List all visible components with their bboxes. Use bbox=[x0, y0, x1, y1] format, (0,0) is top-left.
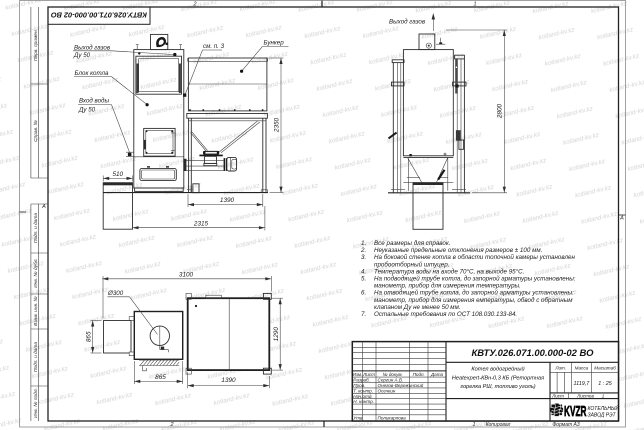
svg-text:Ø300: Ø300 bbox=[107, 290, 124, 297]
svg-text:Бункер: Бункер bbox=[264, 40, 285, 47]
svg-text:Ду 50: Ду 50 bbox=[78, 106, 96, 113]
svg-text:см. п. 3: см. п. 3 bbox=[203, 43, 225, 50]
svg-text:Справ. №: Справ. № bbox=[33, 120, 39, 142]
svg-text:Ду 50: Ду 50 bbox=[73, 52, 91, 59]
svg-text:6.: 6. bbox=[361, 290, 366, 297]
svg-text:Взам. инв. №: Взам. инв. № bbox=[33, 296, 39, 326]
svg-text:№ докум.: № докум. bbox=[383, 372, 403, 377]
svg-text:510: 510 bbox=[112, 171, 123, 178]
svg-text:Лист: Лист bbox=[362, 372, 375, 377]
svg-text:КВТУ.026.071.00.000-02 ВО: КВТУ.026.071.00.000-02 ВО bbox=[472, 348, 594, 358]
svg-text:Лист: Лист bbox=[551, 394, 564, 399]
svg-text:пробоотборный штуцер.: пробоотборный штуцер. bbox=[374, 261, 449, 268]
svg-text:Блок котла: Блок котла bbox=[75, 70, 109, 77]
svg-text:Разраб.: Разраб. bbox=[353, 378, 370, 383]
svg-text:2350: 2350 bbox=[274, 117, 281, 133]
svg-text:Нач.отд.: Нач.отд. bbox=[353, 394, 372, 399]
svg-text:Инв. № подл.: Инв. № подл. bbox=[33, 388, 39, 418]
svg-text:7.: 7. bbox=[361, 311, 366, 318]
svg-text:2315: 2315 bbox=[193, 220, 209, 227]
svg-text:Heatexpert-КВн-0,3 КБ (Ретортн: Heatexpert-КВн-0,3 КБ (Ретортная bbox=[452, 375, 544, 381]
svg-text:Масштаб: Масштаб bbox=[594, 365, 616, 370]
svg-text:горелка РШ, топливо уголь): горелка РШ, топливо уголь) bbox=[460, 384, 535, 390]
svg-text:манометр, прибор для измерения: манометр, прибор для измерения температу… bbox=[374, 283, 521, 290]
svg-text:Лит.: Лит. bbox=[554, 365, 566, 370]
svg-text:1: 1 bbox=[472, 422, 475, 428]
svg-text:Инв. № дубл.: Инв. № дубл. bbox=[33, 258, 39, 288]
svg-text:Поликарпова: Поликарпова bbox=[378, 416, 407, 421]
svg-text:КОТЕЛЬНЫЙ: КОТЕЛЬНЫЙ bbox=[588, 404, 620, 412]
svg-text:Н. контр.: Н. контр. bbox=[353, 399, 374, 404]
svg-text:2: 2 bbox=[169, 422, 173, 428]
svg-text:2.: 2. bbox=[360, 247, 366, 254]
svg-text:4.: 4. bbox=[361, 268, 366, 275]
svg-text:Масса: Масса bbox=[575, 365, 589, 370]
svg-text:Подп. и дата: Подп. и дата bbox=[33, 342, 39, 372]
svg-text:На отводящей трубе котла, до з: На отводящей трубе котла, до запорной ар… bbox=[374, 290, 574, 297]
svg-text:клапаном Ду не менее 50 мм.: клапаном Ду не менее 50 мм. bbox=[374, 304, 461, 311]
svg-text:Утв.: Утв. bbox=[353, 416, 363, 421]
svg-text:Подп. и дата: Подп. и дата bbox=[33, 213, 39, 243]
svg-text:Котел водогрейный: Котел водогрейный bbox=[471, 366, 524, 373]
svg-text:3.: 3. bbox=[361, 254, 366, 261]
svg-text:1: 1 bbox=[602, 394, 605, 399]
svg-text:1.: 1. bbox=[361, 240, 366, 247]
svg-text:КВТУ.026.071.00.000-02 ВО: КВТУ.026.071.00.000-02 ВО bbox=[51, 11, 147, 20]
svg-text:Дата: Дата bbox=[430, 372, 444, 377]
svg-text:Все размеры для справок.: Все размеры для справок. bbox=[374, 240, 451, 247]
svg-text:Изм.: Изм. bbox=[353, 372, 363, 377]
svg-text:Температура воды на входе 70°С: Температура воды на входе 70°С, на выход… bbox=[374, 268, 524, 275]
svg-text:Т. контр.: Т. контр. bbox=[353, 388, 373, 393]
svg-text:Выход газов: Выход газов bbox=[389, 19, 426, 26]
svg-text:Неуказаные предельные отклонен: Неуказаные предельные отклонения размеро… bbox=[374, 247, 542, 254]
svg-text:А: А bbox=[41, 204, 46, 210]
svg-text:5.: 5. bbox=[361, 276, 366, 283]
svg-text:865: 865 bbox=[155, 374, 166, 381]
svg-text:Пров.: Пров. bbox=[353, 383, 365, 388]
svg-text:1 : 25: 1 : 25 bbox=[598, 381, 612, 387]
svg-text:865: 865 bbox=[85, 331, 92, 342]
svg-text:А: А bbox=[619, 216, 624, 222]
svg-text:1: 1 bbox=[473, 2, 476, 8]
svg-text:Вход воды: Вход воды bbox=[79, 98, 109, 105]
svg-text:3100: 3100 bbox=[179, 271, 194, 278]
svg-text:Онегов-Вережинский: Онегов-Вережинский bbox=[378, 382, 424, 388]
svg-text:Осечкин: Осечкин bbox=[378, 388, 396, 393]
svg-text:1290: 1290 bbox=[273, 327, 280, 342]
svg-text:Копировал: Копировал bbox=[486, 422, 511, 428]
svg-text:1390: 1390 bbox=[220, 197, 235, 204]
svg-text:Сергин А.В.: Сергин А.В. bbox=[378, 378, 404, 383]
svg-text:Формат А3: Формат А3 bbox=[552, 422, 580, 428]
svg-text:манометр, прибор для измерения: манометр, прибор для измерения емператур… bbox=[374, 297, 573, 304]
svg-text:Листов: Листов bbox=[576, 394, 594, 399]
svg-text:Выход газов: Выход газов bbox=[74, 44, 111, 51]
svg-text:ЗАВОД РЭТ: ЗАВОД РЭТ bbox=[588, 413, 617, 419]
svg-text:Остальные требования по ОСТ 10: Остальные требования по ОСТ 108.030.133-… bbox=[374, 311, 517, 318]
svg-text:Подп.: Подп. bbox=[413, 372, 425, 377]
svg-text:На боковой стенке котла в обла: На боковой стенке котла в области топочн… bbox=[374, 254, 575, 261]
svg-text:1390: 1390 bbox=[221, 377, 236, 384]
svg-text:KVZR: KVZR bbox=[564, 404, 587, 420]
svg-text:На подводящей трубе котла, до: На подводящей трубе котла, до запорной а… bbox=[374, 276, 576, 283]
svg-text:Перв. примен.: Перв. примен. bbox=[33, 29, 39, 61]
svg-text:2: 2 bbox=[192, 2, 196, 8]
svg-text:1119,7: 1119,7 bbox=[574, 381, 591, 387]
svg-text:2800: 2800 bbox=[497, 103, 504, 119]
